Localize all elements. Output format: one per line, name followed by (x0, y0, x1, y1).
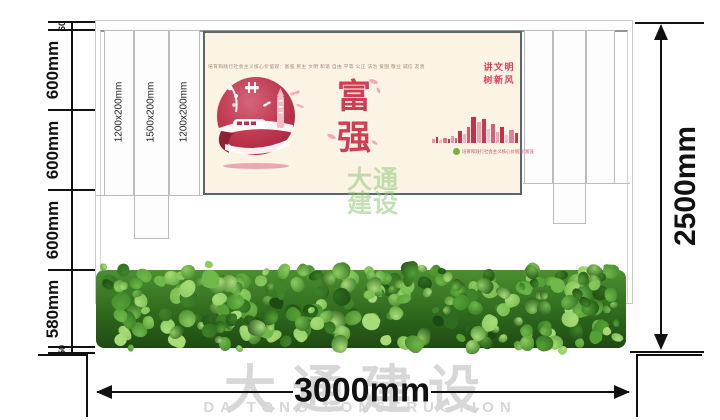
skyline-bar (471, 117, 476, 143)
arrow-up-icon (654, 24, 668, 40)
poster-bottom-caption: 培育和践行社会主义核心价值观 富强 (453, 146, 592, 157)
side-slogan-line-2: 树新风 (483, 74, 515, 87)
skyline-bar (505, 135, 508, 143)
hedge-tuft (522, 324, 533, 337)
slat-right-2 (553, 30, 586, 224)
dimension-tick (48, 29, 95, 31)
dimension-tick (48, 109, 95, 111)
papercut-emblem-icon (207, 76, 307, 171)
skyline-bar (491, 124, 495, 143)
hedge-tuft (117, 264, 130, 277)
skyline-bar (487, 129, 490, 143)
skyline-bar (436, 137, 438, 143)
stamp-line-1: 大通 (347, 168, 399, 192)
skyline-bar (432, 139, 435, 143)
hedge-tuft (205, 260, 214, 268)
slat-size-label-1: 1200x200mm (114, 82, 125, 143)
chain-dimension-label: 600mm (43, 41, 63, 100)
slat-right-3 (586, 30, 615, 184)
side-slogan: 讲文明 树新风 (483, 61, 515, 87)
slat-size-label-2: 1500x200mm (146, 82, 157, 143)
right-shelf-line (523, 183, 630, 184)
skyline-bar (477, 122, 481, 143)
hedge-tuft (331, 334, 349, 354)
green-dot-icon (453, 148, 460, 155)
dimension-tick (48, 189, 95, 191)
chain-dimension-label: 600mm (43, 201, 63, 260)
skyline-bar (448, 139, 450, 143)
skyline-bar (500, 127, 504, 143)
extension-line-top (635, 22, 704, 24)
poster-top-caption: 培育和践行社会主义核心价值观：富强 民主 文明 和谐 自由 平等 公正 法治 爱… (208, 63, 425, 70)
left-shelf-line (96, 195, 203, 196)
hedge-tuft (605, 288, 617, 302)
stamp-watermark: 大通 建设 (347, 168, 399, 216)
slat-size-label-3: 1200x200mm (179, 82, 190, 143)
skyline-bar (455, 138, 457, 143)
hedge-tuft (158, 308, 172, 320)
stamp-line-2: 建设 (347, 192, 399, 216)
skyline-bar (482, 119, 486, 143)
leaf-ornament-icon (375, 87, 381, 93)
slogan-char-fu: 富 (334, 77, 374, 118)
height-dimension-line (660, 26, 662, 348)
company-watermark-english: DA TONG CONSTRUCTION (55, 399, 665, 416)
skyline-bar (451, 136, 454, 143)
side-slogan-line-1: 讲文明 (483, 61, 515, 74)
height-dimension-label: 2500mm (669, 126, 703, 246)
hedge-tuft (127, 344, 134, 351)
slat-right-1 (524, 30, 553, 184)
slogan-char-qiang: 强 (334, 118, 374, 159)
chain-dimension-label: 580mm (43, 279, 63, 338)
skyline-bar (463, 134, 466, 143)
dimension-tick (48, 269, 95, 271)
main-slogan-fuqiang: 富 强 (334, 77, 374, 159)
hedge-tuft (201, 323, 217, 338)
skyline-bar (439, 140, 442, 143)
chain-dimension-label: 600mm (43, 121, 63, 180)
city-skyline-graphic (432, 116, 520, 143)
skyline-bar (458, 131, 462, 143)
skyline-bar (496, 132, 499, 143)
skyline-bar (509, 130, 514, 143)
hedge (92, 260, 630, 356)
skyline-bar (515, 133, 518, 143)
skyline-bar (467, 127, 470, 143)
bottom-caption-text: 培育和践行社会主义核心价值观 富强 (462, 148, 534, 154)
drawing-canvas: 大通建设 DA TONG CONSTRUCTION 1200x200mm 150… (0, 0, 720, 420)
hedge-tuft (613, 318, 619, 326)
chain-dimension-label: 60 (57, 21, 67, 31)
chain-dimension-line (71, 22, 73, 353)
hedge-tuft (180, 264, 195, 278)
dimension-tick (48, 21, 95, 23)
skyline-bar (443, 138, 447, 143)
